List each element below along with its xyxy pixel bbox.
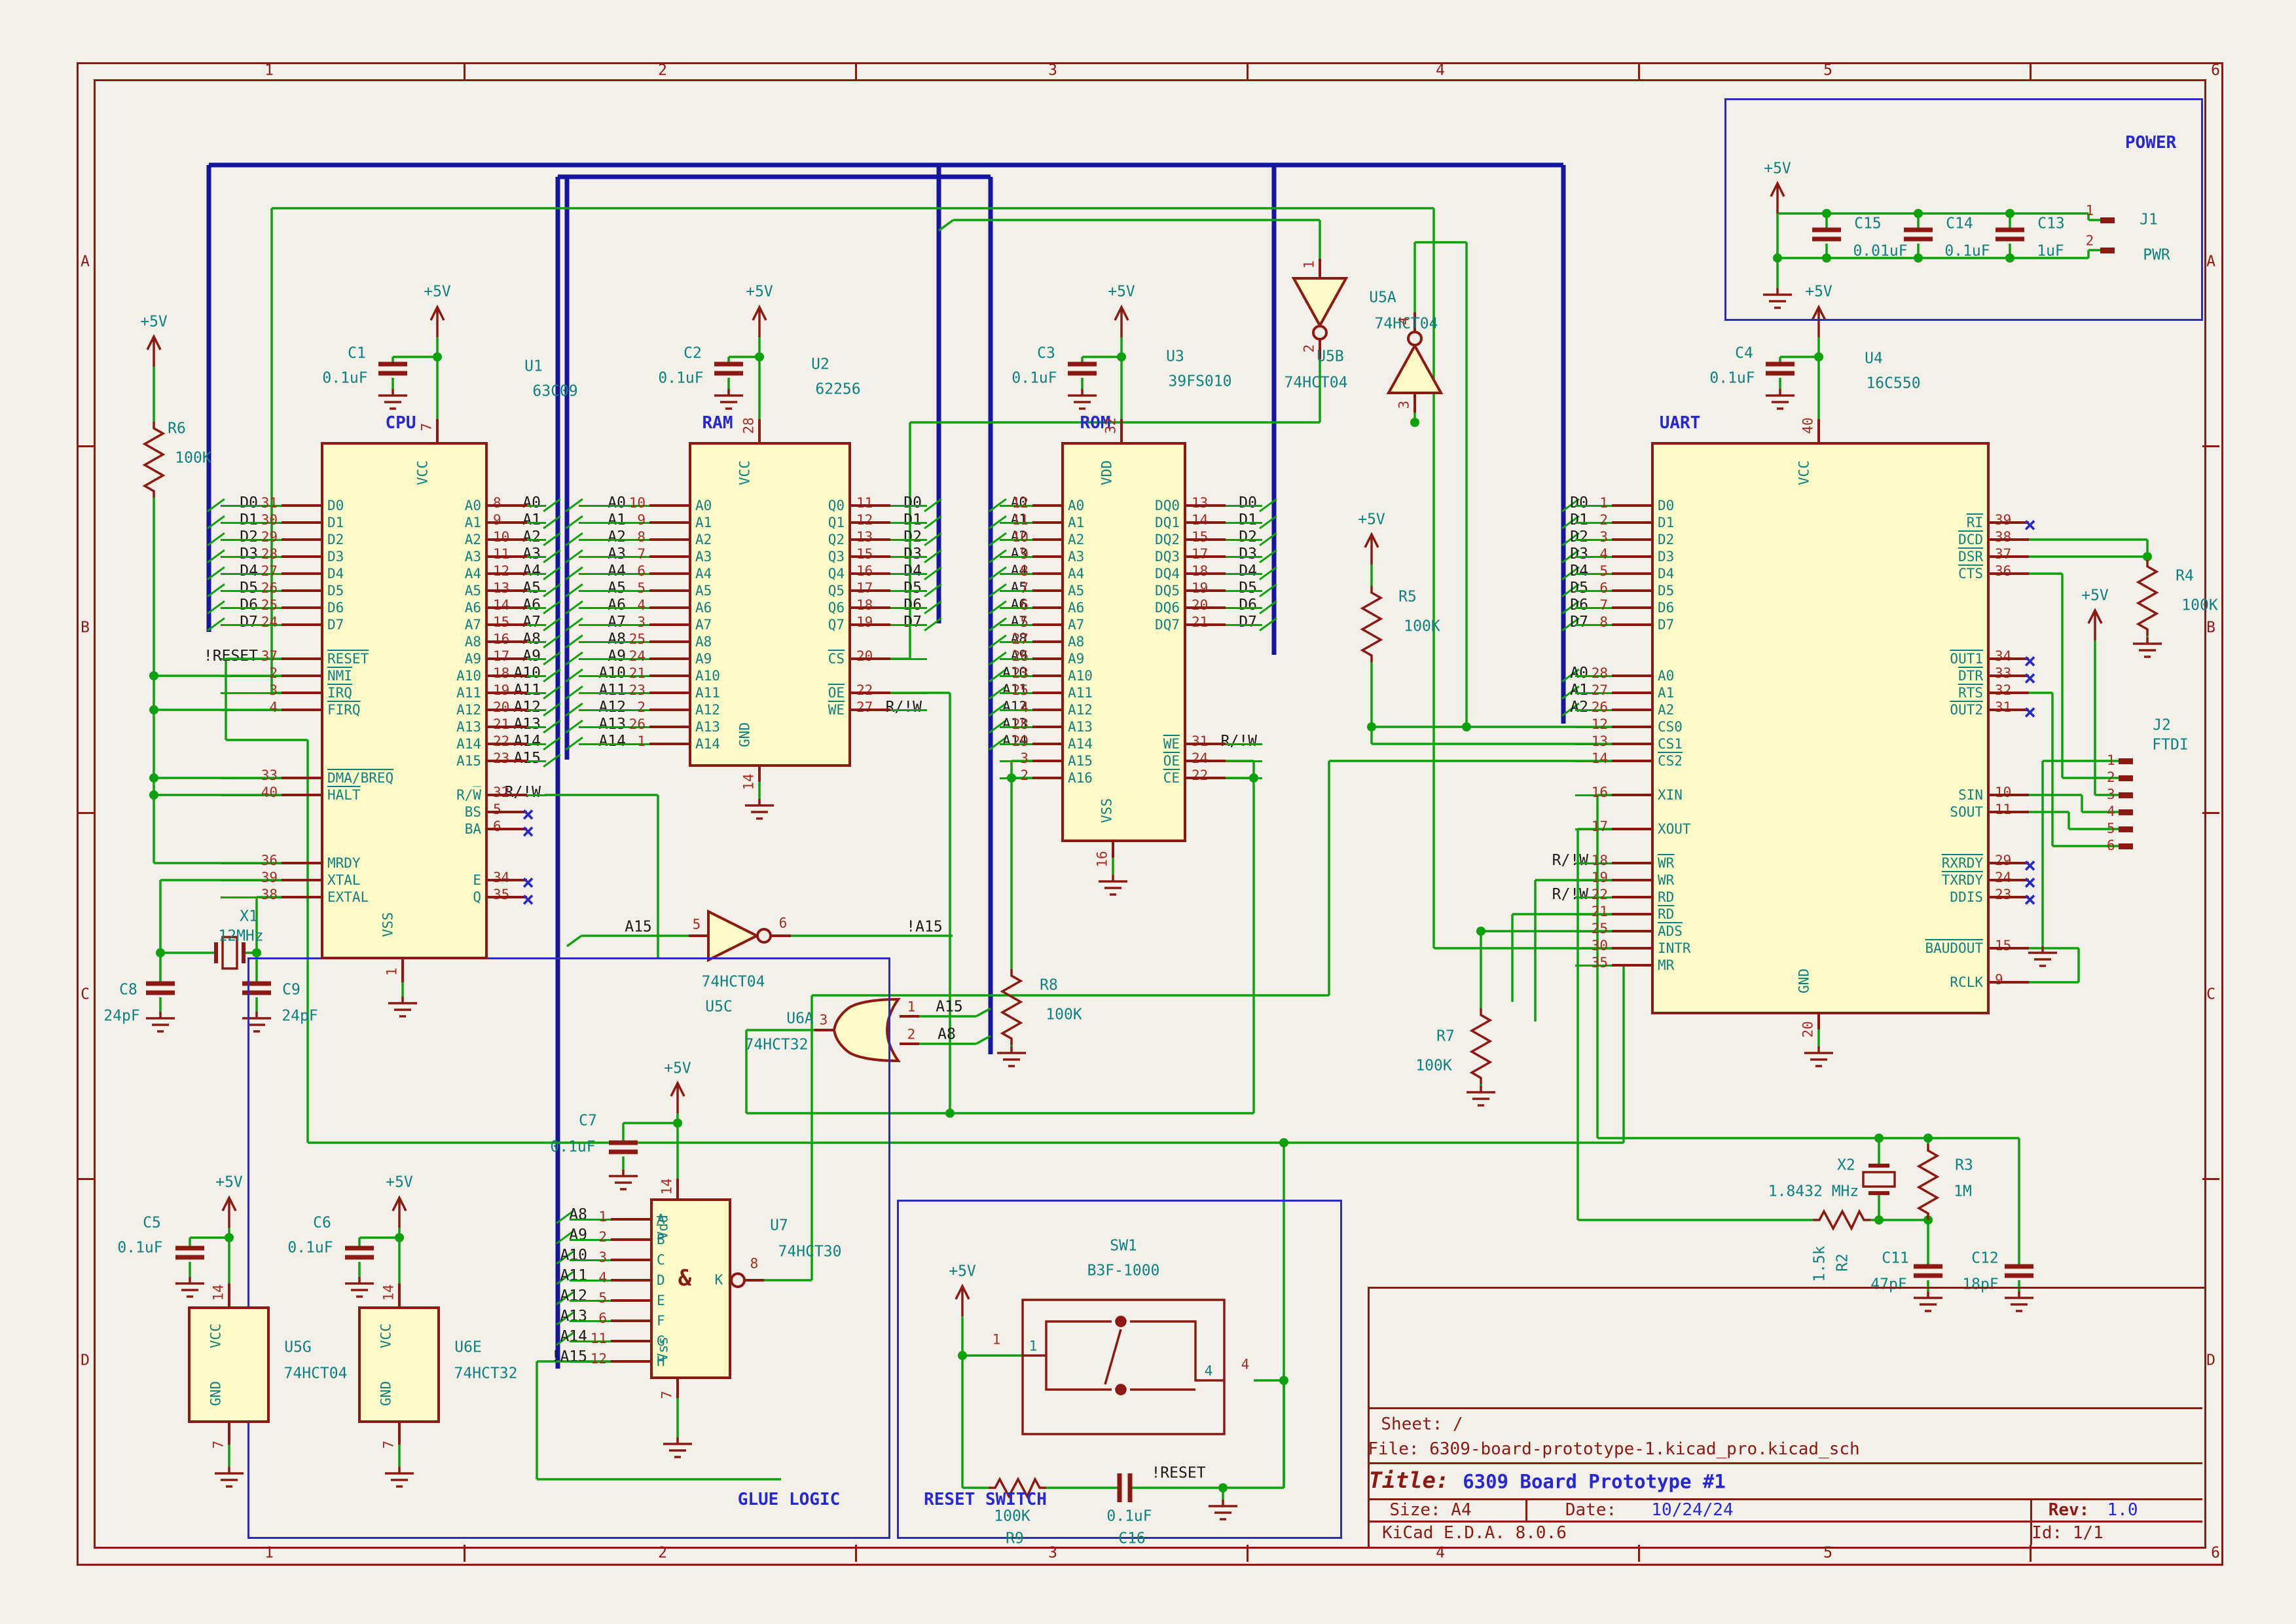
rom-left-pins[interactable]: A012×A0A111×A1A210×A2A39×A3A48×A4A57×A5A…: [991, 497, 1061, 786]
net-a15[interactable]: A15: [625, 920, 652, 935]
pin-row[interactable]: A141×A14: [567, 735, 689, 752]
net-label[interactable]: D3: [903, 545, 922, 563]
uart-right-pins[interactable]: 39×RI38×DCD37×DSR36×CTS34×OUT133×DTR32×R…: [1990, 497, 2029, 991]
uart-left-pins[interactable]: D01×D0D12×D1D23×D2D34×D3D45×D4D56×D5D67×…: [1563, 497, 1651, 974]
net-label[interactable]: D0: [240, 494, 258, 511]
wire[interactable]: [1000, 624, 1035, 626]
pin[interactable]: [851, 538, 890, 541]
j1-ref[interactable]: J1: [2140, 213, 2158, 228]
c1-ref[interactable]: C1: [348, 346, 366, 361]
pin[interactable]: [488, 692, 527, 694]
pin[interactable]: [488, 589, 527, 592]
pin[interactable]: [1032, 674, 1061, 677]
net-label[interactable]: A2: [608, 528, 626, 545]
wire[interactable]: [1223, 607, 1262, 609]
pin[interactable]: [1612, 743, 1651, 745]
pin-row[interactable]: !RESET37×RESET: [209, 650, 321, 667]
net-label[interactable]: D2: [240, 528, 258, 545]
net-label[interactable]: A2: [1570, 699, 1588, 716]
net-label[interactable]: !RESET: [204, 648, 258, 665]
wire[interactable]: [1223, 522, 1262, 524]
wire[interactable]: [888, 539, 927, 541]
pin[interactable]: [1032, 606, 1061, 609]
pin-row[interactable]: 20×CS: [851, 650, 939, 667]
pin[interactable]: [1612, 674, 1651, 677]
pin-row[interactable]: 36×CTS: [1990, 565, 2029, 582]
pin[interactable]: [649, 589, 689, 592]
pin[interactable]: [1032, 726, 1061, 728]
pin[interactable]: [1990, 572, 2029, 575]
ic-uart-u4[interactable]: [1651, 442, 1990, 1014]
net-label[interactable]: A12: [560, 1287, 587, 1304]
pin[interactable]: [1186, 555, 1226, 558]
net-label[interactable]: D0: [903, 494, 922, 511]
net-label[interactable]: D7: [1239, 614, 1257, 631]
wire[interactable]: [1223, 539, 1262, 541]
pin[interactable]: [1612, 947, 1651, 950]
pin[interactable]: [649, 657, 689, 660]
pin-row[interactable]: A924×A9: [567, 650, 689, 667]
pin-row[interactable]: A55×A5: [567, 582, 689, 599]
wire[interactable]: [524, 760, 546, 762]
net-label[interactable]: A12: [598, 699, 626, 716]
net-label[interactable]: D3: [1570, 545, 1588, 563]
pin-row[interactable]: A122×A12: [567, 701, 689, 718]
pin-row[interactable]: 31×OUT2: [1990, 701, 2029, 718]
net-label[interactable]: R/!W: [1221, 733, 1257, 750]
wire[interactable]: [1575, 539, 1614, 541]
wire[interactable]: [1575, 573, 1614, 575]
wire[interactable]: [1000, 777, 1035, 779]
pin[interactable]: [611, 1218, 650, 1221]
net-label[interactable]: A4: [608, 563, 626, 580]
net-label[interactable]: D4: [240, 563, 258, 580]
net-label[interactable]: R/!W: [505, 784, 541, 801]
cpu-left-pins[interactable]: D031×D0D130×D1D229×D2D328×D3D427×D4D526×…: [209, 497, 321, 906]
pin[interactable]: [1990, 896, 2029, 898]
pin[interactable]: [1032, 743, 1061, 745]
pin[interactable]: [1612, 504, 1651, 507]
pin-row[interactable]: D721×DQ7: [1186, 616, 1274, 633]
pin[interactable]: [1612, 794, 1651, 796]
pin[interactable]: [649, 521, 689, 524]
ic-ram-u2[interactable]: [689, 442, 851, 767]
net-label[interactable]: R/!W: [886, 699, 922, 716]
pin[interactable]: [1186, 760, 1226, 762]
pin[interactable]: [488, 828, 527, 830]
pin[interactable]: [1032, 521, 1061, 524]
wire[interactable]: [1223, 760, 1262, 762]
net-label[interactable]: A4: [522, 563, 541, 580]
pin[interactable]: [1032, 589, 1061, 592]
net-label[interactable]: A0: [522, 494, 541, 511]
pin[interactable]: [1612, 760, 1651, 762]
pin[interactable]: [1612, 692, 1651, 694]
pin[interactable]: [1612, 913, 1651, 915]
pin[interactable]: [851, 589, 890, 592]
pin[interactable]: [282, 623, 321, 626]
pin-row[interactable]: 22×CE: [1186, 769, 1274, 786]
pin-row[interactable]: 35×Q: [488, 889, 558, 906]
pin-row[interactable]: D78×D7: [1563, 616, 1651, 633]
wire[interactable]: [1575, 607, 1614, 609]
wire[interactable]: [524, 573, 546, 575]
wire[interactable]: [888, 590, 927, 592]
pin[interactable]: [488, 521, 527, 524]
pin[interactable]: [282, 606, 321, 609]
wire[interactable]: [1575, 522, 1614, 524]
wire[interactable]: [524, 794, 546, 796]
connector-pin-row[interactable]: RX5: [2030, 821, 2119, 838]
wire[interactable]: [524, 658, 546, 660]
wire[interactable]: [888, 658, 927, 660]
wire[interactable]: [524, 505, 546, 507]
net-label[interactable]: A1: [608, 511, 626, 528]
wire[interactable]: [1575, 556, 1614, 558]
sw1-ref[interactable]: SW1: [1110, 1239, 1137, 1254]
pin[interactable]: [1990, 811, 2029, 813]
pin[interactable]: [1990, 879, 2029, 881]
pin[interactable]: [1186, 538, 1226, 541]
pin[interactable]: [488, 879, 527, 881]
pin-row[interactable]: A64×A6: [567, 599, 689, 616]
pin[interactable]: [611, 1299, 650, 1302]
pin[interactable]: [488, 674, 527, 677]
wire[interactable]: [1000, 590, 1035, 592]
net-label[interactable]: A10: [598, 665, 626, 682]
net-label[interactable]: D1: [240, 511, 258, 528]
pin-row[interactable]: A19×A1: [567, 514, 689, 531]
pin[interactable]: [488, 623, 527, 626]
wire[interactable]: [1000, 709, 1035, 711]
pin[interactable]: [488, 811, 527, 813]
pin[interactable]: [488, 896, 527, 898]
net-label[interactable]: A3: [608, 545, 626, 563]
wire[interactable]: [524, 675, 546, 677]
net-label[interactable]: A12: [513, 699, 541, 716]
pin[interactable]: [488, 572, 527, 575]
net-label[interactable]: A11: [560, 1267, 587, 1284]
net-label[interactable]: D0: [1239, 494, 1257, 511]
pin[interactable]: [282, 879, 321, 881]
pin[interactable]: [282, 657, 321, 660]
net-label[interactable]: A9: [522, 648, 541, 665]
net-label[interactable]: A13: [513, 716, 541, 733]
ic-power-u6e[interactable]: [358, 1306, 440, 1423]
pin[interactable]: [488, 538, 527, 541]
rom-value[interactable]: 39FS010: [1169, 375, 1232, 390]
pin[interactable]: [851, 521, 890, 524]
pin[interactable]: [1612, 879, 1651, 881]
ram-left-pins[interactable]: A010×A0A19×A1A28×A2A37×A3A46×A4A55×A5A64…: [567, 497, 689, 752]
connector-pin-row[interactable]: RTS6: [2030, 838, 2119, 855]
pin[interactable]: [851, 555, 890, 558]
net-label[interactable]: A11: [513, 682, 541, 699]
wire[interactable]: [1575, 505, 1614, 507]
pin[interactable]: [851, 692, 890, 694]
pin[interactable]: [488, 504, 527, 507]
wire[interactable]: [888, 522, 927, 524]
pin-row[interactable]: A46×A4: [567, 565, 689, 582]
pin[interactable]: [611, 1259, 650, 1261]
pin-row[interactable]: 16×XIN: [1563, 786, 1651, 803]
pin[interactable]: [851, 504, 890, 507]
net-label[interactable]: A6: [608, 597, 626, 614]
net-label[interactable]: D1: [1570, 511, 1588, 528]
pin-row[interactable]: A1123×A11: [567, 684, 689, 701]
pin[interactable]: [282, 777, 321, 779]
pin[interactable]: [282, 538, 321, 541]
pin[interactable]: [649, 623, 689, 626]
pin-row[interactable]: R/!W27×WE: [851, 701, 939, 718]
connector-pin-row[interactable]: CTS2: [2030, 769, 2119, 786]
pin[interactable]: [649, 504, 689, 507]
u7-left-pins[interactable]: A81×AA92×BA103×CA114×DA125×EA136×FA1411×…: [558, 1209, 650, 1371]
wire[interactable]: [1000, 607, 1035, 609]
pin-row[interactable]: A1523×A15: [488, 752, 558, 769]
pin-row[interactable]: 9×RCLK: [1990, 974, 2029, 991]
net-label[interactable]: D0: [1570, 494, 1588, 511]
pin[interactable]: [649, 606, 689, 609]
pin[interactable]: [1032, 504, 1061, 507]
pin[interactable]: [488, 657, 527, 660]
pin[interactable]: [1612, 726, 1651, 728]
pin[interactable]: [1612, 930, 1651, 932]
wire[interactable]: [1223, 624, 1262, 626]
net-label[interactable]: D5: [240, 580, 258, 597]
pin[interactable]: [1032, 623, 1061, 626]
ic-power-u5g[interactable]: [188, 1306, 270, 1423]
wire[interactable]: [1000, 556, 1035, 558]
pin-row[interactable]: 15×BAUDOUT: [1990, 940, 2029, 957]
net-label[interactable]: A8: [522, 631, 541, 648]
net-label[interactable]: D5: [1570, 580, 1588, 597]
j2-pins[interactable]: GND1CTS25V3TX4RX5RTS6: [2030, 752, 2119, 855]
pin[interactable]: [1612, 709, 1651, 711]
net-label[interactable]: A14: [560, 1328, 587, 1345]
pin[interactable]: [649, 555, 689, 558]
rom-ref[interactable]: U3: [1166, 350, 1184, 365]
pin-row[interactable]: 4×FIRQ: [209, 701, 321, 718]
pin[interactable]: [1612, 828, 1651, 830]
net-label[interactable]: D3: [1239, 545, 1257, 563]
net-label[interactable]: A3: [522, 545, 541, 563]
net-label[interactable]: A15: [513, 750, 541, 767]
net-label[interactable]: A10: [513, 665, 541, 682]
wire[interactable]: [1223, 556, 1262, 558]
ram-value[interactable]: 62256: [815, 382, 860, 397]
pin[interactable]: [1612, 964, 1651, 967]
wire[interactable]: [524, 607, 546, 609]
pin[interactable]: [1990, 538, 2029, 541]
pin[interactable]: [488, 555, 527, 558]
pin-row[interactable]: 11×SOUT: [1990, 803, 2029, 821]
pin[interactable]: [1990, 555, 2029, 558]
wire[interactable]: [1000, 760, 1035, 762]
pin[interactable]: [1032, 640, 1061, 643]
pin[interactable]: [1612, 606, 1651, 609]
pin-row[interactable]: A010×A0: [567, 497, 689, 514]
pin[interactable]: [649, 709, 689, 711]
pin[interactable]: [1612, 862, 1651, 864]
net-label[interactable]: A1: [1570, 682, 1588, 699]
pin-row[interactable]: 14×CS2: [1563, 752, 1651, 769]
wire[interactable]: [524, 624, 546, 626]
pin[interactable]: [1612, 538, 1651, 541]
pin[interactable]: [1990, 947, 2029, 950]
pin-row[interactable]: A73×A7: [567, 616, 689, 633]
cpu-value[interactable]: 63C09: [532, 384, 577, 399]
net-label[interactable]: A13: [598, 716, 626, 733]
pin[interactable]: [649, 640, 689, 643]
wire[interactable]: [888, 573, 927, 575]
pin[interactable]: [1186, 743, 1226, 745]
pin-row[interactable]: A825×A8: [567, 633, 689, 650]
net-label[interactable]: A1: [522, 511, 541, 528]
pin[interactable]: [282, 709, 321, 711]
net-reset[interactable]: !RESET: [1151, 1466, 1205, 1481]
pin[interactable]: [1032, 572, 1061, 575]
net-label[interactable]: D7: [903, 614, 922, 631]
net-label[interactable]: A10: [560, 1247, 587, 1264]
net-label[interactable]: A0: [608, 494, 626, 511]
uart-ref[interactable]: U4: [1865, 352, 1883, 367]
pin[interactable]: [1990, 521, 2029, 524]
wire[interactable]: [524, 556, 546, 558]
pin[interactable]: [282, 896, 321, 898]
wire[interactable]: [1575, 624, 1614, 626]
wire[interactable]: [524, 743, 546, 745]
pin[interactable]: [649, 692, 689, 694]
pin[interactable]: [649, 538, 689, 541]
pin[interactable]: [1186, 504, 1226, 507]
pin[interactable]: [1990, 692, 2029, 694]
pin-row[interactable]: 35×MR: [1563, 957, 1651, 974]
net-label[interactable]: A11: [598, 682, 626, 699]
wire[interactable]: [888, 709, 927, 711]
pin[interactable]: [1186, 606, 1226, 609]
pin[interactable]: [282, 521, 321, 524]
wire[interactable]: [1575, 590, 1614, 592]
pin[interactable]: [649, 572, 689, 575]
net-label[interactable]: A5: [522, 580, 541, 597]
connector-pin-row[interactable]: TX4: [2030, 803, 2119, 821]
net-label[interactable]: D2: [1239, 528, 1257, 545]
pin[interactable]: [1032, 555, 1061, 558]
wire[interactable]: [524, 522, 546, 524]
pin[interactable]: [1186, 777, 1226, 779]
pin[interactable]: [611, 1319, 650, 1322]
pin-row[interactable]: 40×HALT: [209, 786, 321, 803]
net-label[interactable]: D6: [240, 597, 258, 614]
pin[interactable]: [1612, 555, 1651, 558]
pin-row[interactable]: 2×A16: [991, 769, 1061, 786]
cpu-right-pins[interactable]: A08×A0A19×A1A210×A2A311×A3A412×A4A513×A5…: [488, 497, 558, 906]
pin[interactable]: [649, 743, 689, 745]
uart-value[interactable]: 16C550: [1866, 377, 1920, 392]
net-label[interactable]: D4: [1239, 563, 1257, 580]
wire[interactable]: [888, 607, 927, 609]
net-label[interactable]: A8: [569, 1206, 587, 1223]
net-label[interactable]: D7: [240, 614, 258, 631]
wire[interactable]: [524, 641, 546, 643]
pin[interactable]: [1032, 692, 1061, 694]
net-label[interactable]: A7: [522, 614, 541, 631]
net-label[interactable]: A14: [513, 733, 541, 750]
net-label[interactable]: A5: [608, 580, 626, 597]
pin[interactable]: [851, 657, 890, 660]
pin[interactable]: [611, 1279, 650, 1282]
pin[interactable]: [851, 709, 890, 711]
net-label[interactable]: A2: [522, 528, 541, 545]
net-label[interactable]: !A15: [551, 1348, 587, 1365]
wire[interactable]: [888, 624, 927, 626]
pin-row[interactable]: 2×NMI: [209, 667, 321, 684]
pin[interactable]: [1612, 521, 1651, 524]
pin-row[interactable]: D719×Q7: [851, 616, 939, 633]
net-label[interactable]: D4: [1570, 563, 1588, 580]
pin[interactable]: [1990, 674, 2029, 677]
net-label[interactable]: A9: [569, 1227, 587, 1244]
net-label[interactable]: R/!W: [1552, 886, 1588, 903]
pin[interactable]: [649, 674, 689, 677]
pin[interactable]: [488, 726, 527, 728]
wire[interactable]: [1223, 590, 1262, 592]
pin[interactable]: [488, 794, 527, 796]
net-label[interactable]: D3: [240, 545, 258, 563]
connector-pin-row[interactable]: GND1: [2030, 752, 2119, 769]
pin[interactable]: [282, 589, 321, 592]
net-label[interactable]: D6: [1239, 597, 1257, 614]
pin[interactable]: [611, 1360, 650, 1363]
pin[interactable]: [282, 504, 321, 507]
pin[interactable]: [1990, 794, 2029, 796]
pin[interactable]: [1612, 572, 1651, 575]
ram-ref[interactable]: U2: [811, 358, 829, 373]
pin[interactable]: [1032, 760, 1061, 762]
pin[interactable]: [1990, 657, 2029, 660]
pin[interactable]: [488, 743, 527, 745]
pin[interactable]: [1990, 981, 2029, 984]
net-label[interactable]: D6: [903, 597, 922, 614]
pin[interactable]: [611, 1238, 650, 1241]
j2-ref[interactable]: J2: [2153, 718, 2171, 733]
net-label[interactable]: A9: [608, 648, 626, 665]
pin[interactable]: [649, 726, 689, 728]
net-label[interactable]: D2: [1570, 528, 1588, 545]
pin[interactable]: [1612, 623, 1651, 626]
wire[interactable]: [888, 505, 927, 507]
wire[interactable]: [524, 539, 546, 541]
net-label[interactable]: D4: [903, 563, 922, 580]
cpu-ref[interactable]: U1: [524, 360, 543, 375]
pin[interactable]: [1990, 709, 2029, 711]
pin-row[interactable]: 3×IRQ: [209, 684, 321, 701]
wire[interactable]: [888, 692, 927, 694]
pin[interactable]: [488, 640, 527, 643]
pin[interactable]: [1032, 709, 1061, 711]
wire[interactable]: [1000, 573, 1035, 575]
pin[interactable]: [851, 623, 890, 626]
wire[interactable]: [1223, 573, 1262, 575]
wire[interactable]: [524, 709, 546, 711]
pin[interactable]: [1032, 538, 1061, 541]
pin-row[interactable]: A37×A3: [567, 548, 689, 565]
wire[interactable]: [524, 692, 546, 694]
net-label[interactable]: D7: [1570, 614, 1588, 631]
pin-row[interactable]: 38×EXTAL: [209, 889, 321, 906]
net-label[interactable]: D2: [903, 528, 922, 545]
